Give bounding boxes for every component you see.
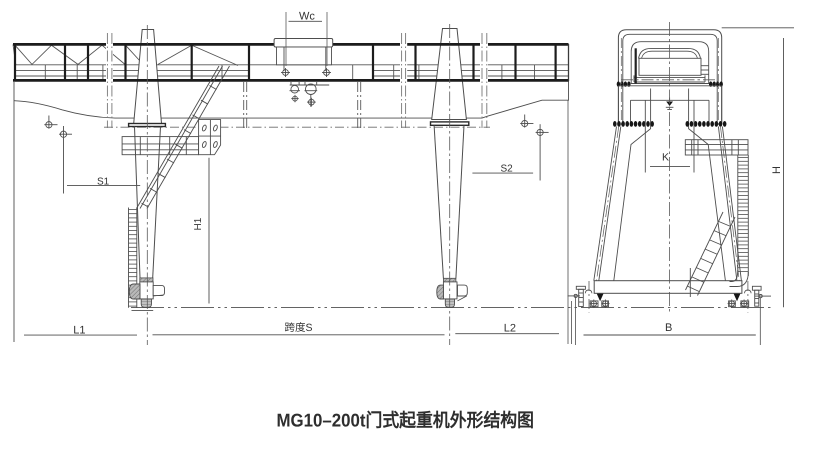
svg-text:H: H: [771, 166, 783, 174]
svg-text:跨度S: 跨度S: [285, 322, 313, 334]
svg-text:B: B: [665, 322, 672, 334]
svg-text:K: K: [662, 152, 669, 164]
svg-text:L2: L2: [504, 323, 516, 335]
svg-text:L1: L1: [73, 324, 85, 336]
svg-text:S1: S1: [97, 177, 110, 188]
svg-text:H1: H1: [193, 217, 204, 230]
svg-text:MG10–200t门式起重机外形结构图: MG10–200t门式起重机外形结构图: [277, 409, 535, 430]
svg-text:Wc: Wc: [299, 10, 315, 22]
svg-text:S2: S2: [501, 163, 514, 174]
